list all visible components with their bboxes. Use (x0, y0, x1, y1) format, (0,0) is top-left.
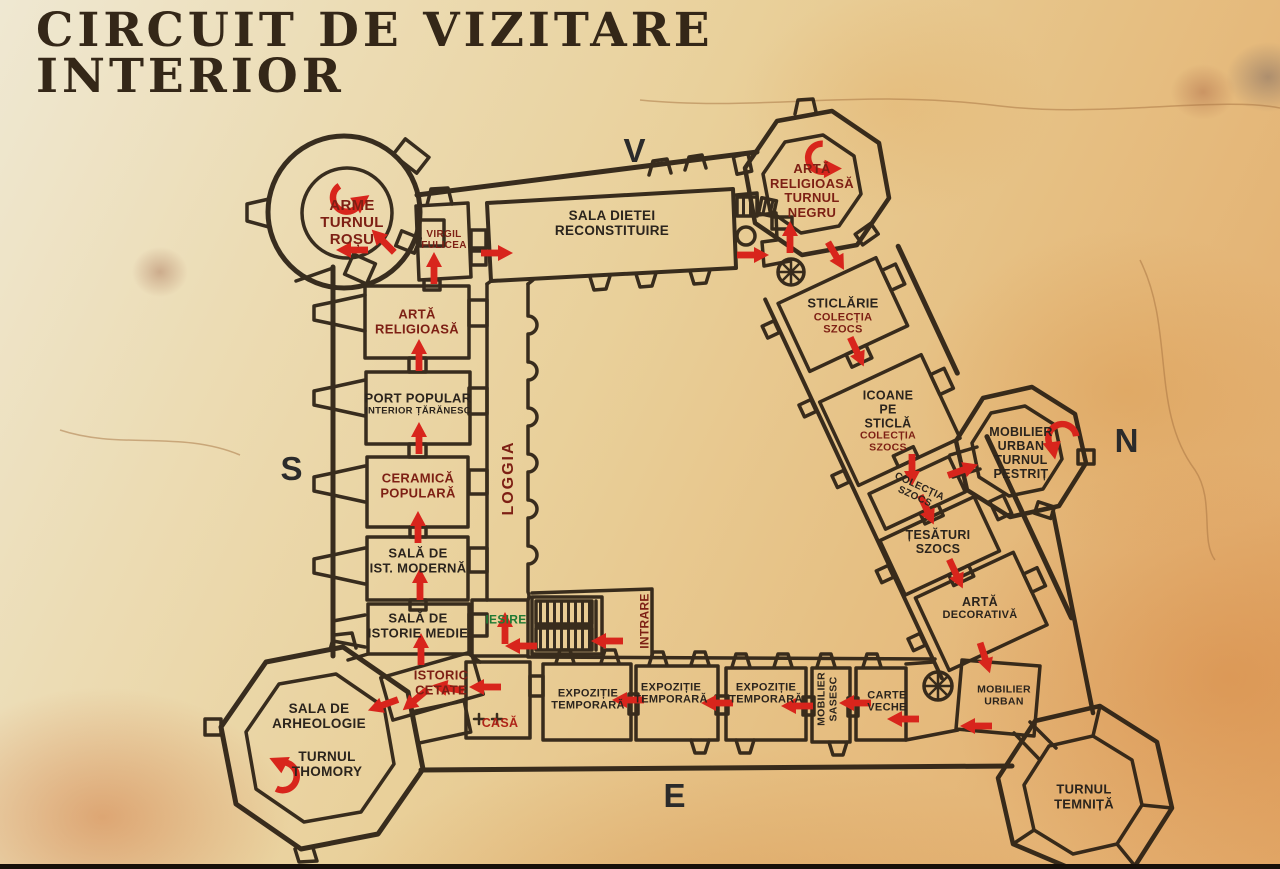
label-loggia: LOGGIA (500, 440, 518, 515)
label-line: VECHE (867, 702, 906, 714)
label-sala-dietei: SALA DIETEIRECONSTITUIRE (555, 208, 669, 238)
label-line: PESTRIȚ (989, 467, 1053, 481)
label-line: FULICEA (421, 240, 466, 251)
label-iesire: IESIRE (485, 613, 526, 626)
label-line: LOGGIA (500, 440, 518, 515)
label-line: ARHEOLOGIE (272, 716, 366, 731)
label-line: ISTORIE MEDIE (368, 626, 468, 641)
label-sala-istorie-medie: SALĂ DEISTORIE MEDIE (368, 611, 468, 640)
label-line: DECORATIVĂ (943, 609, 1018, 621)
label-line: MOBILIER (977, 684, 1031, 696)
circuit-arrow (821, 238, 851, 274)
label-line: CARTE (867, 690, 906, 702)
label-line: EXPOZIȚIE (551, 688, 625, 700)
entrance-exit-area (472, 589, 935, 659)
label-line: RELIGIOASĂ (770, 176, 854, 191)
label-line: SZOCS (906, 542, 971, 556)
label-line: PE (860, 402, 916, 416)
label-expozitie-temporara-3: EXPOZIȚIETEMPORARĂ (729, 682, 803, 707)
label-intrare: INTRARE (638, 593, 651, 648)
floorplan-svg (0, 0, 1280, 869)
label-line: THOMORY (292, 764, 363, 779)
label-line: CERAMICĂ (380, 471, 455, 486)
label-line: IST. MODERNĂ (370, 561, 467, 576)
label-line: RELIGIOASĂ (375, 322, 459, 337)
label-istoric-cetate: ISTORICCETATE (414, 668, 469, 697)
label-line: ARTĂ (770, 162, 854, 177)
label-line: STICLĂ (860, 416, 916, 430)
circuit-arrow (469, 679, 501, 695)
label-line: ȚESĂTURI (906, 528, 971, 542)
label-arme-turnul-rosu: ARMETURNULROȘU (320, 198, 383, 248)
label-sala-de-arheologie: SALA DEARHEOLOGIE (272, 701, 366, 731)
label-virgil-fulicea: VIRGILFULICEA (421, 229, 466, 251)
label-line: SZOCS (860, 442, 916, 454)
label-carte-veche: CARTEVECHE (867, 690, 906, 715)
label-line: CETATE (414, 683, 469, 698)
east-curtain-wall (1053, 512, 1093, 713)
label-line: TURNUL (292, 749, 363, 764)
label-line: ARTĂ (943, 595, 1018, 609)
label-line: INTRARE (638, 593, 651, 648)
label-line: POPULARĂ (380, 486, 455, 501)
label-arta-religioasa-turnul-negru: ARTĂRELIGIOASĂTURNULNEGRU (770, 162, 854, 220)
label-line: SALĂ DE (370, 546, 467, 561)
label-line: PORT POPULAR (365, 391, 472, 406)
label-line: MOBILIER (816, 672, 828, 726)
label-line: ARTĂ (375, 307, 459, 322)
label-turnul-thomory: TURNULTHOMORY (292, 749, 363, 779)
label-line: TEMPORARĂ (634, 694, 708, 706)
map-photo: CIRCUIT DE VIZITARE INTERIOR V N S E (0, 0, 1280, 869)
label-line: TEMPORARĂ (551, 700, 625, 712)
label-line: SASESC (828, 672, 840, 726)
spiral-stair-icon (778, 259, 804, 285)
label-line: ICOANE (860, 388, 916, 402)
label-line: SZOCS (807, 323, 878, 335)
label-arta-decorativa: ARTĂDECORATIVĂ (943, 595, 1018, 621)
label-expozitie-temporara-2: EXPOZIȚIETEMPORARĂ (634, 682, 708, 707)
photo-bottom-edge (0, 864, 1280, 869)
label-tesaturi-szocs: ȚESĂTURISZOCS (906, 528, 971, 556)
label-mobilier-sasesc: MOBILIERSASESC (816, 672, 840, 726)
label-line: TURNUL (320, 215, 383, 232)
label-sticlarie-colectia-szocs: STICLĂRIECOLECȚIASZOCS (807, 296, 878, 335)
label-line: CASĂ (482, 716, 519, 730)
label-expozitie-temporara-1: EXPOZIȚIETEMPORARĂ (551, 688, 625, 713)
spiral-stair-icon (924, 672, 952, 700)
label-line: TURNUL (770, 191, 854, 206)
label-line: VIRGIL (421, 229, 466, 240)
label-line: TURNUL (1054, 782, 1114, 797)
label-port-popular: PORT POPULARINTERIOR ȚĂRĂNESC (365, 391, 472, 416)
label-line: COLECȚIA (807, 311, 878, 323)
label-line: MOBILIER (989, 425, 1053, 439)
south-curtain-wall (421, 766, 1012, 770)
label-line: TEMPORARĂ (729, 694, 803, 706)
room-sala-dietei (487, 189, 736, 290)
label-mobilier-urban-turnul-pestrit: MOBILIERURBANTURNULPESTRIȚ (989, 425, 1053, 481)
label-line: TEMNIȚĂ (1054, 797, 1114, 812)
label-line: IESIRE (485, 613, 526, 626)
label-line: EXPOZIȚIE (729, 682, 803, 694)
label-line: URBAN (977, 696, 1031, 708)
label-line: COLECȚIA (860, 430, 916, 442)
label-line: NEGRU (770, 206, 854, 221)
label-line: ARME (320, 198, 383, 215)
label-casa: CASĂ (482, 716, 519, 730)
label-icoane-pe-sticla: ICOANEPESTICLĂCOLECȚIASZOCS (860, 388, 916, 454)
label-line: ISTORIC (414, 668, 469, 683)
label-line: URBAN (989, 439, 1053, 453)
label-line: SALA DE (272, 701, 366, 716)
label-sala-ist-moderna: SALĂ DEIST. MODERNĂ (370, 546, 467, 575)
label-line: INTERIOR ȚĂRĂNESC (365, 406, 472, 417)
label-line: ROȘU (320, 231, 383, 248)
label-turnul-temnita: TURNULTEMNIȚĂ (1054, 782, 1114, 811)
label-ceramica-populara: CERAMICĂPOPULARĂ (380, 471, 455, 500)
label-line: TURNUL (989, 453, 1053, 467)
label-line: EXPOZIȚIE (634, 682, 708, 694)
label-line: SALA DIETEI (555, 208, 669, 223)
label-mobilier-urban-est: MOBILIERURBAN (977, 684, 1031, 708)
label-line: SALĂ DE (368, 611, 468, 626)
label-line: RECONSTITUIRE (555, 223, 669, 238)
label-arta-religioasa-sud: ARTĂRELIGIOASĂ (375, 307, 459, 336)
label-line: STICLĂRIE (807, 296, 878, 311)
